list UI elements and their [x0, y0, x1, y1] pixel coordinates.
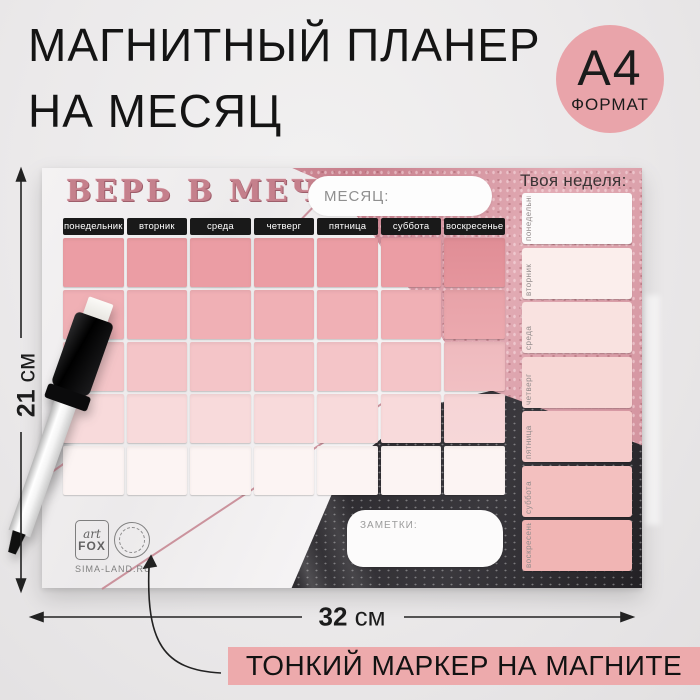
week-panel-day-label: понедельник	[524, 196, 533, 241]
week-panel-day-label: суббота	[524, 469, 533, 514]
grid-cell	[381, 342, 442, 391]
week-panel-day-label: четверг	[524, 360, 533, 405]
month-label: МЕСЯЦ:	[324, 188, 389, 205]
grid-cell	[190, 446, 251, 495]
footer-banner: ТОНКИЙ МАРКЕР НА МАГНИТЕ	[228, 647, 700, 685]
brand-site: SIMA-LAND.RU	[75, 564, 185, 574]
brand-block: art FOX SIMA-LAND.RU	[75, 520, 185, 574]
week-panel-box: понедельник	[522, 193, 632, 244]
week-panel: понедельниквторниксредачетвергпятницасуб…	[522, 193, 632, 571]
grid-cell	[381, 446, 442, 495]
weekday-header-cell: понедельник	[63, 218, 124, 235]
grid-cell	[190, 238, 251, 287]
grid-cell	[190, 290, 251, 339]
height-dimension-label: 21 см	[13, 353, 42, 417]
week-panel-box: четверг	[522, 357, 632, 408]
week-panel-day-label: среда	[524, 305, 533, 350]
grid-cell	[190, 394, 251, 443]
logo-fox-text: FOX	[78, 540, 106, 552]
grid-cell	[381, 394, 442, 443]
planner-board: ВЕРЬ В МЕЧТУ МЕСЯЦ: понедельниквторникср…	[42, 168, 642, 588]
width-unit: см	[355, 602, 386, 632]
weekday-header-cell: пятница	[317, 218, 378, 235]
grid-cell	[317, 238, 378, 287]
grid-cell	[254, 446, 315, 495]
notes-field: ЗАМЕТКИ:	[347, 510, 503, 567]
weekday-header-cell: суббота	[381, 218, 442, 235]
grid-cell	[127, 342, 188, 391]
width-value: 32	[318, 602, 347, 632]
grid-cell	[317, 394, 378, 443]
grid-cell	[254, 394, 315, 443]
grid-cell	[127, 446, 188, 495]
product-photo: МАГНИТНЫЙ ПЛАНЕР НА МЕСЯЦ А4 ФОРМАТ ВЕРЬ…	[0, 0, 700, 700]
weekday-header-cell: среда	[190, 218, 251, 235]
week-panel-box: суббота	[522, 466, 632, 517]
calendar-grid: понедельниквторниксредачетвергпятницасуб…	[63, 218, 505, 495]
artfox-logo: art FOX	[75, 520, 109, 560]
grid-cell	[444, 290, 505, 339]
grid-cell	[317, 446, 378, 495]
grid-cell	[254, 290, 315, 339]
footer-banner-text: ТОНКИЙ МАРКЕР НА МАГНИТЕ	[246, 650, 682, 682]
grid-cell	[444, 342, 505, 391]
weekday-header-cell: вторник	[127, 218, 188, 235]
headline-line2: НА МЕСЯЦ	[28, 78, 541, 144]
grid-cell	[127, 290, 188, 339]
grid-cell	[381, 238, 442, 287]
grid-cell	[254, 342, 315, 391]
grid-cell	[444, 238, 505, 287]
badge-size: А4	[577, 43, 642, 93]
weekday-header-cell: четверг	[254, 218, 315, 235]
sima-land-stamp-icon	[114, 522, 150, 558]
format-badge: А4 ФОРМАТ	[556, 25, 664, 133]
grid-cell	[444, 446, 505, 495]
grid-cell	[127, 394, 188, 443]
week-panel-box: пятница	[522, 411, 632, 462]
month-field: МЕСЯЦ:	[308, 176, 492, 216]
weekday-header-cell: воскресенье	[444, 218, 505, 235]
grid-cell	[317, 342, 378, 391]
height-unit: см	[13, 353, 41, 383]
height-value: 21	[13, 389, 41, 417]
week-panel-day-label: вторник	[524, 251, 533, 296]
badge-label: ФОРМАТ	[571, 95, 649, 115]
grid-cell	[444, 394, 505, 443]
grid-cell	[254, 238, 315, 287]
week-panel-day-label: пятница	[524, 414, 533, 459]
product-headline: МАГНИТНЫЙ ПЛАНЕР НА МЕСЯЦ	[28, 12, 541, 144]
grid-cell	[381, 290, 442, 339]
notes-label: ЗАМЕТКИ:	[360, 520, 418, 531]
headline-line1: МАГНИТНЫЙ ПЛАНЕР	[28, 12, 541, 78]
grid-cell	[63, 238, 124, 287]
grid-cell	[190, 342, 251, 391]
wall-highlight	[646, 295, 660, 525]
grid-cell	[127, 238, 188, 287]
width-dimension-label: 32 см	[318, 602, 385, 633]
week-panel-box: вторник	[522, 248, 632, 299]
grid-cell	[317, 290, 378, 339]
week-panel-day-label: воскресенье	[524, 523, 533, 568]
week-panel-title: Твоя неделя:	[520, 171, 627, 191]
week-panel-box: среда	[522, 302, 632, 353]
week-panel-box: воскресенье	[522, 520, 632, 571]
